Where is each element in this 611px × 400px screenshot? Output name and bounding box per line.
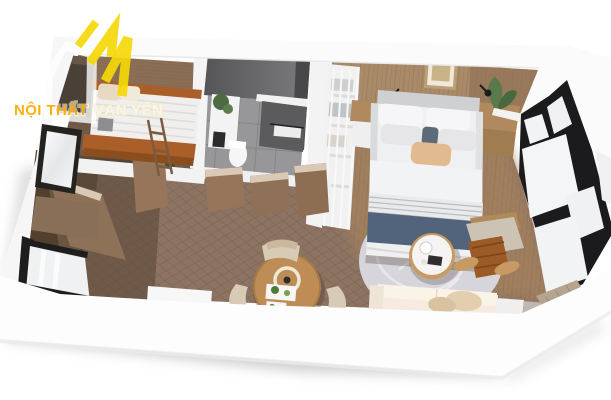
- svg-text:VẠN YẾN: VẠN YẾN: [94, 102, 163, 119]
- svg-text:NỘI THẤT: NỘI THẤT: [14, 101, 88, 119]
